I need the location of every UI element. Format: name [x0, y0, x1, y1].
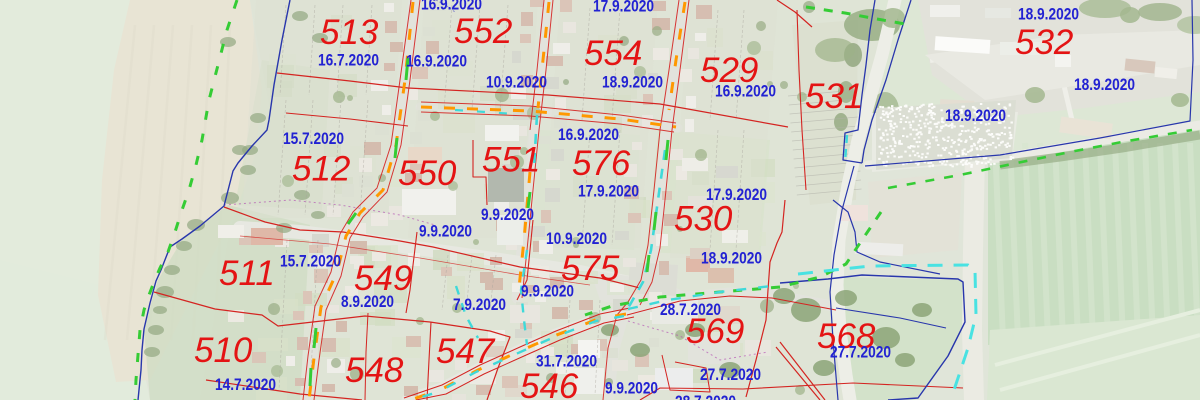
svg-text:14.7.2020: 14.7.2020	[215, 376, 276, 394]
svg-text:530: 530	[674, 200, 733, 239]
svg-text:548: 548	[345, 351, 404, 390]
svg-text:531: 531	[805, 77, 863, 116]
svg-text:547: 547	[436, 332, 496, 371]
svg-text:18.9.2020: 18.9.2020	[701, 249, 762, 267]
svg-text:18.9.2020: 18.9.2020	[945, 107, 1006, 125]
svg-text:18.9.2020: 18.9.2020	[1074, 76, 1135, 94]
svg-text:16.9.2020: 16.9.2020	[406, 53, 467, 71]
svg-text:18.9.2020: 18.9.2020	[1018, 5, 1079, 23]
svg-text:9.9.2020: 9.9.2020	[481, 206, 534, 224]
svg-text:17.9.2020: 17.9.2020	[706, 186, 767, 204]
svg-text:576: 576	[572, 144, 631, 183]
svg-text:552: 552	[454, 12, 512, 51]
svg-text:31.7.2020: 31.7.2020	[536, 353, 597, 371]
svg-text:10.9.2020: 10.9.2020	[546, 230, 607, 248]
svg-text:7.9.2020: 7.9.2020	[453, 296, 506, 314]
svg-text:550: 550	[398, 154, 457, 193]
svg-text:546: 546	[520, 367, 579, 400]
svg-text:15.7.2020: 15.7.2020	[283, 130, 344, 148]
svg-text:16.9.2020: 16.9.2020	[558, 126, 619, 144]
svg-text:16.9.2020: 16.9.2020	[715, 83, 776, 101]
svg-text:9.9.2020: 9.9.2020	[605, 379, 658, 397]
svg-text:17.9.2020: 17.9.2020	[593, 0, 654, 16]
svg-text:10.9.2020: 10.9.2020	[486, 74, 547, 92]
svg-text:554: 554	[584, 34, 642, 73]
svg-text:9.9.2020: 9.9.2020	[521, 283, 574, 301]
svg-text:27.7.2020: 27.7.2020	[830, 343, 891, 361]
svg-text:510: 510	[194, 331, 253, 370]
svg-text:551: 551	[482, 141, 540, 180]
svg-text:16.9.2020: 16.9.2020	[421, 0, 482, 14]
svg-text:16.7.2020: 16.7.2020	[318, 52, 379, 70]
svg-text:17.9.2020: 17.9.2020	[578, 183, 639, 201]
svg-text:511: 511	[219, 254, 275, 293]
svg-text:28.7.2020: 28.7.2020	[660, 301, 721, 319]
svg-text:27.7.2020: 27.7.2020	[700, 366, 761, 384]
svg-text:512: 512	[292, 150, 350, 189]
svg-text:513: 513	[320, 13, 379, 52]
svg-text:532: 532	[1015, 23, 1073, 62]
svg-text:28.7.2020: 28.7.2020	[675, 393, 736, 400]
svg-text:18.9.2020: 18.9.2020	[602, 73, 663, 91]
svg-text:9.9.2020: 9.9.2020	[419, 223, 472, 241]
svg-text:15.7.2020: 15.7.2020	[280, 253, 341, 271]
svg-text:8.9.2020: 8.9.2020	[341, 293, 394, 311]
